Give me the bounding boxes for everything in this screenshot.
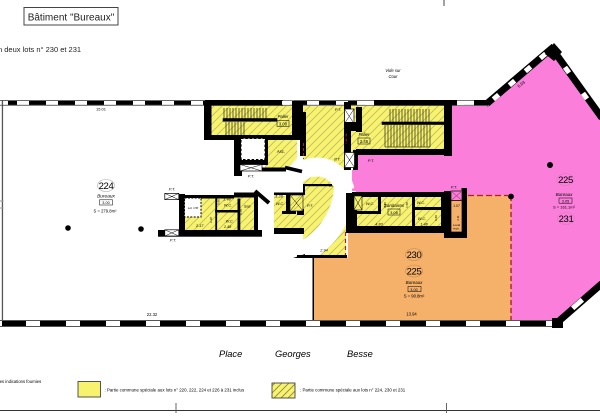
svg-text:1.40: 1.40	[417, 193, 425, 197]
svg-text:0.78: 0.78	[239, 209, 243, 215]
svg-text:S = 279.8m²: S = 279.8m²	[94, 209, 118, 214]
svg-text:3.1: 3.1	[329, 184, 334, 188]
svg-text:P.T.: P.T.	[307, 204, 313, 208]
svg-text:2.46: 2.46	[360, 139, 369, 144]
svg-text:W.C.: W.C.	[225, 220, 233, 224]
svg-text:Asc.: Asc.	[276, 149, 285, 154]
svg-text:1.16: 1.16	[366, 193, 374, 197]
svg-text:Besse: Besse	[347, 349, 373, 359]
svg-text:230: 230	[407, 250, 422, 261]
svg-text:0.80: 0.80	[434, 215, 438, 221]
svg-text:3.00: 3.00	[279, 122, 288, 127]
svg-text:Palier: Palier	[359, 132, 370, 137]
svg-text:Lot n°M: Lot n°M	[188, 206, 199, 210]
svg-text:1.58: 1.58	[405, 202, 409, 208]
svg-text:tech.: tech.	[453, 227, 460, 231]
svg-text:P.T.: P.T.	[248, 174, 254, 179]
svg-text:P.T.: P.T.	[451, 185, 457, 190]
svg-text:22.32: 22.32	[147, 312, 158, 317]
svg-text:Bâtiment "Bureaux": Bâtiment "Bureaux"	[28, 13, 115, 24]
svg-text:W.C.: W.C.	[418, 217, 426, 221]
svg-text:: Partie commune spéciale aux: : Partie commune spéciale aux lots n° 22…	[105, 388, 245, 393]
svg-text:3.00: 3.00	[102, 201, 109, 205]
svg-text:0.90: 0.90	[434, 193, 442, 197]
svg-text:231: 231	[559, 214, 574, 225]
svg-text:n deux lots n° 230 et 231: n deux lots n° 230 et 231	[0, 45, 81, 54]
svg-text:P.T.: P.T.	[368, 158, 374, 163]
svg-text:W.C.: W.C.	[224, 203, 232, 207]
svg-text:rées indications fournies: rées indications fournies	[0, 379, 41, 384]
svg-text:W.C.: W.C.	[366, 202, 374, 206]
svg-text:Place: Place	[219, 349, 242, 359]
svg-text:3.08: 3.08	[390, 210, 399, 215]
svg-text:: Partie commune spéciale aux: : Partie commune spéciale aux lots n° 22…	[300, 388, 406, 393]
svg-text:2.28: 2.28	[209, 217, 213, 223]
svg-text:225: 225	[558, 175, 573, 186]
svg-text:W.C.: W.C.	[417, 201, 425, 205]
svg-text:Georges: Georges	[275, 349, 311, 359]
svg-text:Cour: Cour	[388, 74, 398, 79]
svg-text:Palier: Palier	[278, 114, 289, 119]
svg-text:13.94: 13.94	[406, 312, 417, 317]
svg-text:Vide sur: Vide sur	[385, 68, 401, 73]
svg-text:4.83: 4.83	[375, 223, 383, 227]
svg-text:S = 161.1m²: S = 161.1m²	[553, 205, 576, 210]
svg-text:P.T.: P.T.	[169, 187, 175, 192]
svg-text:2.17: 2.17	[195, 224, 204, 228]
svg-text:3.00: 3.00	[410, 288, 417, 292]
svg-text:Bureaux: Bureaux	[556, 192, 574, 197]
svg-text:0.90: 0.90	[217, 199, 221, 205]
svg-text:1.28: 1.28	[275, 195, 283, 199]
svg-text:P.T.: P.T.	[335, 107, 341, 112]
svg-text:Sanitaires: Sanitaires	[384, 203, 405, 208]
svg-text:3.05: 3.05	[562, 199, 569, 203]
svg-text:1.48: 1.48	[420, 223, 428, 227]
svg-text:Bureaux: Bureaux	[97, 194, 115, 200]
svg-text:Sas: Sas	[244, 205, 251, 209]
svg-text:Bureaux: Bureaux	[406, 280, 424, 285]
svg-text:2.11: 2.11	[456, 215, 460, 221]
svg-text:1.48: 1.48	[223, 197, 231, 201]
svg-text:2.94: 2.94	[319, 249, 327, 253]
svg-text:P.T.: P.T.	[170, 238, 176, 243]
svg-text:1.48: 1.48	[224, 225, 232, 229]
svg-text:P.T.: P.T.	[334, 157, 340, 162]
svg-text:S = 90.8m²: S = 90.8m²	[404, 294, 425, 299]
svg-text:15.01: 15.01	[96, 107, 107, 112]
svg-text:225: 225	[407, 267, 422, 278]
svg-text:1.07: 1.07	[453, 204, 460, 208]
svg-text:224: 224	[99, 181, 114, 192]
svg-text:W.C.: W.C.	[276, 202, 284, 206]
